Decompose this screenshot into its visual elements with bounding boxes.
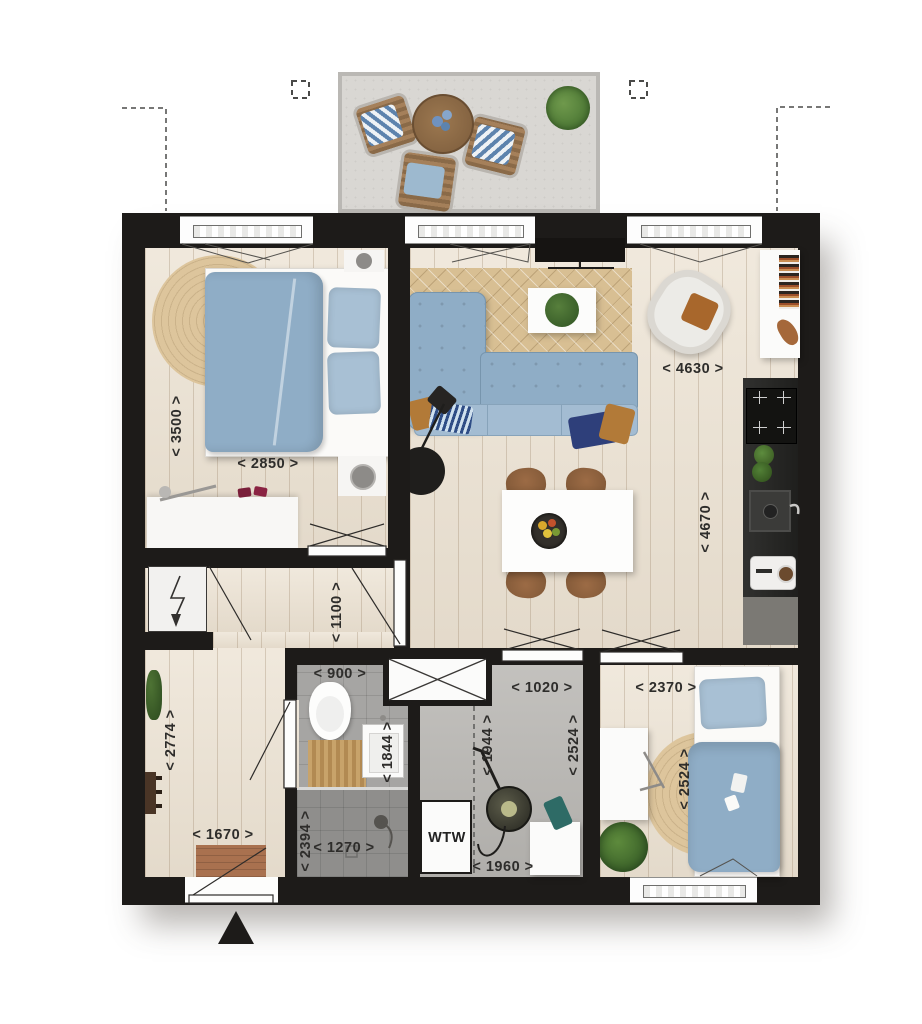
book [724,794,740,811]
wall-bedroom-living [388,248,410,560]
bed-duvet [205,272,323,452]
nightstand [338,456,386,496]
burner [783,391,784,404]
flowers [442,110,452,120]
vacuum-detail [501,801,517,817]
wooden-object [774,316,802,348]
entrance-door-opening [185,877,278,903]
chair-cushion [360,104,405,147]
dim-tech-clear-depth: < 1944 > [480,709,496,781]
sideboard [147,497,298,548]
burner [777,427,791,428]
fruit-bowl [531,513,567,549]
balcony-table [412,94,474,154]
bed-duvet [688,742,780,872]
table-lamp [356,253,372,269]
dim-bedroom-second-width: < 2370 > [630,680,702,696]
window-sash [641,225,751,238]
burner [783,421,784,434]
shoes [237,487,251,498]
balcony-chair [394,148,460,215]
dim-bathroom-width: < 900 > [304,666,376,682]
dim-tech-bottom-width: < 1960 > [467,859,539,875]
dim-bedroom-second-depth: < 2524 > [677,743,693,815]
meter-cabinet [148,566,207,632]
chair-cushion [403,162,445,199]
drain [763,504,778,519]
toilet-bowl [316,696,344,732]
kitchen-sink [749,490,791,532]
seam [561,405,562,435]
dim-living-width: < 4630 > [657,361,729,377]
sofa-back [480,352,638,412]
coffee-table [528,288,596,333]
vacuum-cleaner [486,786,532,832]
dim-bedroom-main-width: < 2850 > [232,456,304,472]
wall-bathroom-west [285,648,297,700]
table-lamp [350,464,376,490]
balcony-plant [546,86,590,130]
cooktop [746,388,797,444]
burner [759,421,760,434]
duvet-fold [273,278,296,445]
herb-plant [752,462,772,482]
wall-bedroom-south [145,548,310,568]
dashed-outline-right [777,107,830,211]
coat-rack [145,772,156,814]
bed-pillow [327,351,381,415]
armchair-pillow [680,292,720,332]
coffee-machine-knob [777,565,795,583]
fruit [543,529,552,538]
bath-mat [308,740,366,788]
column-marker [630,81,647,98]
coffee-machine-slot [756,569,772,573]
floorplan: WTW [0,0,922,1024]
bedroom-plant [598,822,648,872]
wall-bathroom-west [285,788,297,877]
books [779,255,799,309]
dim-hall-passage: < 1100 > [329,576,345,648]
fruit [548,519,556,527]
dim-bedroom-main-depth: < 3500 > [169,390,185,462]
bed-pillow [699,676,768,729]
dim-living-depth: < 4670 > [698,486,714,558]
seam [487,405,488,435]
dim-hall-width: < 1670 > [187,827,259,843]
burner [759,391,760,404]
dashed-outline-left [122,108,166,211]
table-plant [545,293,579,327]
book [730,773,747,794]
hall-plant [146,670,162,720]
window-sash [418,225,524,238]
column-marker [292,81,309,98]
hall-floor [213,632,394,648]
bed-pillow [327,287,381,349]
wall-meter-stub [145,632,213,650]
toilet [309,682,351,740]
desk-second [600,728,648,820]
window-bedroom-main [180,216,313,244]
flowers [441,122,450,131]
window-sash [643,885,747,898]
wtw-label: WTW [411,830,483,846]
chair-cushion [471,123,516,165]
fruit [552,528,560,536]
window-bedroom-second [630,877,757,903]
closet [389,659,486,700]
wall-tech-bedroom [583,648,600,877]
dim-tech-depth: < 2524 > [566,709,582,781]
wall-desk [760,250,800,358]
wall-bedroom2-north [683,648,798,665]
coffee-machine [750,556,796,590]
dim-hall-depth: < 2774 > [163,704,179,776]
tv [535,238,625,262]
window-sash [193,225,301,238]
burner [753,397,767,398]
wtw-unit: WTW [420,800,472,874]
dim-bathroom-sink-zone: < 1844 > [380,716,396,788]
burner [777,397,791,398]
entrance-arrow-icon [218,911,254,944]
window-living [627,216,762,244]
dining-table [502,490,633,572]
burner [753,427,767,428]
kitchen-counter-end [743,597,798,645]
nightstand [344,250,384,272]
balcony-door-window [405,216,535,244]
dim-bathroom-shower-width: < 1270 > [308,840,380,856]
bathroom-door-opening [283,700,299,788]
dim-tech-width: < 1020 > [506,680,578,696]
